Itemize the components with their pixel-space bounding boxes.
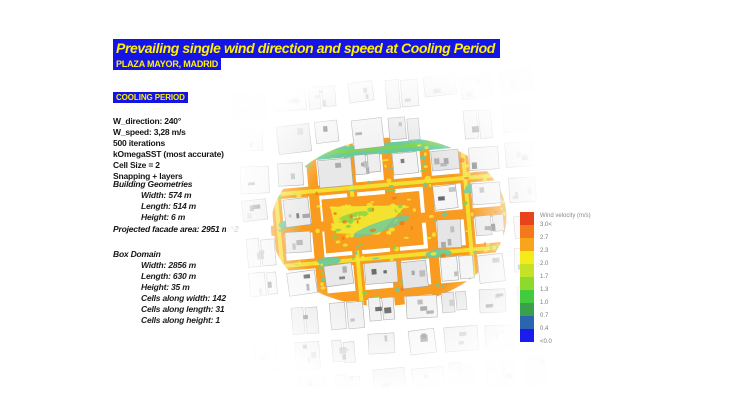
geometry-line: Height: 6 m: [141, 212, 196, 223]
legend-label: 0.7: [540, 313, 548, 320]
legend-swatch: [520, 303, 534, 316]
legend-label: <0.0: [540, 339, 552, 346]
geometry-line: Width: 574 m: [141, 190, 196, 201]
page-subtitle: PLAZA MAYOR, MADRID: [113, 58, 221, 70]
box-domain-line: Cells along height: 1: [141, 315, 226, 326]
box-domain-line: Length: 630 m: [141, 271, 226, 282]
legend-swatch: [520, 290, 534, 303]
legend-swatch: [520, 277, 534, 290]
box-domain-line: Width: 2856 m: [141, 260, 226, 271]
box-domain-line: Cells along length: 31: [141, 304, 226, 315]
param-line: Cell Size = 2: [113, 160, 224, 171]
legend-swatch: [520, 316, 534, 329]
legend-swatch: [520, 212, 534, 225]
box-domain-line: Height: 35 m: [141, 282, 226, 293]
legend-label: 0.4: [540, 326, 548, 333]
building-geometries: Building Geometries Width: 574 m Length:…: [113, 179, 196, 223]
section-badge: COOLING PERIOD: [113, 92, 188, 103]
legend-label: 1.3: [540, 287, 548, 294]
legend-label: 2.3: [540, 248, 548, 255]
legend-label: 2.0: [540, 261, 548, 268]
legend-swatch: [520, 225, 534, 238]
legend-label: 3.0<: [540, 222, 552, 229]
geometry-line: Length: 514 m: [141, 201, 196, 212]
legend-label: 1.7: [540, 274, 548, 281]
param-line: 500 iterations: [113, 138, 224, 149]
page-title: Prevailing single wind direction and spe…: [113, 39, 500, 58]
wind-map-svg: [226, 66, 546, 388]
simulation-params: W_direction: 240° W_speed: 3,28 m/s 500 …: [113, 116, 224, 182]
building-geometries-heading: Building Geometries: [113, 179, 196, 190]
projected-facade-area: Projected facade area: 2951 m^2: [113, 224, 238, 234]
legend-swatch: [520, 329, 534, 342]
legend-title: Wind velocity (m/s): [540, 213, 591, 219]
param-line: W_direction: 240°: [113, 116, 224, 127]
param-line: W_speed: 3,28 m/s: [113, 127, 224, 138]
slide: Prevailing single wind direction and spe…: [0, 0, 730, 411]
box-domain: Box Domain Width: 2856 m Length: 630 m H…: [113, 249, 226, 326]
legend-label: 1.0: [540, 300, 548, 307]
legend-swatch: [520, 264, 534, 277]
legend-bands: [520, 212, 534, 342]
legend-swatch: [520, 251, 534, 264]
legend-swatch: [520, 238, 534, 251]
box-domain-heading: Box Domain: [113, 249, 226, 260]
param-line: kOmegaSST (most accurate): [113, 149, 224, 160]
legend-label: 2.7: [540, 235, 548, 242]
legend: Wind velocity (m/s) 3.0<2.72.32.01.71.31…: [520, 212, 610, 348]
box-domain-line: Cells along width: 142: [141, 293, 226, 304]
